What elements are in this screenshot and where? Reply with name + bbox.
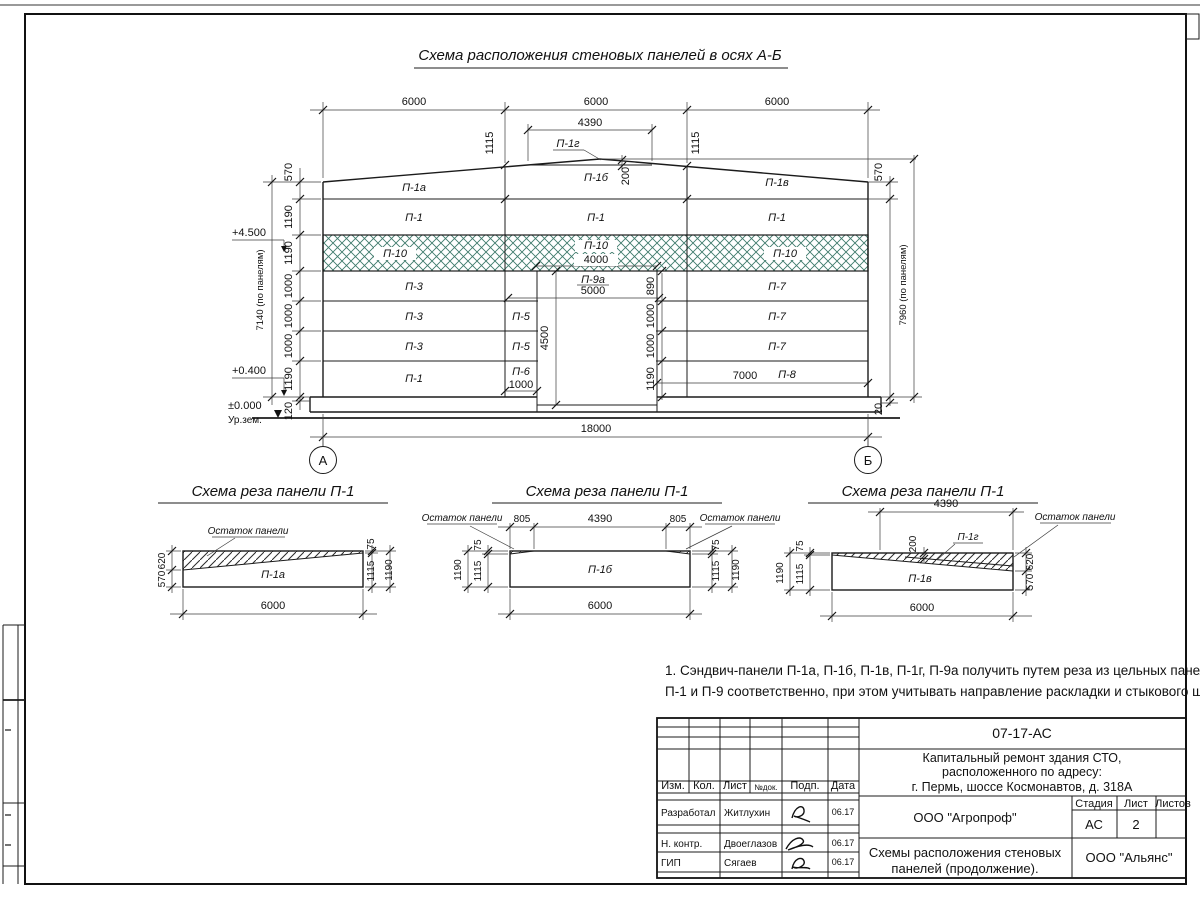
dim-door-890: 890 bbox=[645, 277, 657, 295]
cut1-dim-6000: 6000 bbox=[261, 600, 285, 612]
panel-p8: П-8 bbox=[778, 369, 797, 381]
cut3-dim-r620: 620 bbox=[1025, 553, 1036, 570]
panel-p3b: П-3 bbox=[405, 311, 424, 323]
page-title: Схема расположения стеновых панелей в ос… bbox=[418, 47, 781, 64]
panel-p1-row7: П-1 bbox=[405, 373, 423, 385]
tb-name-1: Житлухин bbox=[724, 808, 770, 819]
axis-label-b: Б bbox=[864, 453, 873, 468]
title-block: Изм. Кол. Лист №док. Подп. Дата Разработ… bbox=[657, 718, 1191, 878]
note: 1. Сэндвич-панели П-1а, П-1б, П-1в, П-1г… bbox=[665, 663, 1200, 699]
cut3-piece-label: П-1г bbox=[957, 532, 978, 543]
dim-left-1190b: 1190 bbox=[283, 241, 295, 265]
cut3-dim-r570: 570 bbox=[1025, 573, 1036, 590]
panel-p7a: П-7 bbox=[768, 281, 787, 293]
cut-scheme-3: Схема реза панели П-1 П-1в П-1г Остаток … bbox=[775, 483, 1116, 622]
tb-sheet-label: Лист bbox=[1124, 798, 1148, 810]
level-arrow-2 bbox=[281, 390, 287, 396]
main-elevation: 6000 6000 6000 4390 1115 1115 200 570 11… bbox=[228, 96, 922, 474]
tb-header-izm: Изм. bbox=[661, 780, 685, 792]
cut3-dim-4390: 4390 bbox=[934, 498, 958, 510]
cut3-panel-label: П-1в bbox=[908, 573, 932, 585]
cut2-dim-805r: 805 bbox=[670, 514, 687, 525]
cut2-dim-l75: 75 bbox=[473, 539, 484, 551]
dim-door-1190: 1190 bbox=[645, 367, 657, 391]
axis-label-a: А bbox=[319, 453, 328, 468]
panel-p5a: П-5 bbox=[512, 311, 531, 323]
cut1-dim-570: 570 bbox=[157, 570, 168, 587]
cut1-dim-1115: 1115 bbox=[366, 560, 377, 581]
cut3-title: Схема реза панели П-1 bbox=[842, 483, 1005, 500]
cut1-remnant-label: Остаток панели bbox=[208, 526, 289, 537]
level-4500: +4.500 bbox=[232, 227, 266, 239]
panel-p1-row2a: П-1 bbox=[405, 212, 423, 224]
dim-left-1190c: 1190 bbox=[283, 367, 295, 391]
cut2-title: Схема реза панели П-1 bbox=[526, 483, 689, 500]
tb-role-3: ГИП bbox=[661, 858, 681, 869]
signature-2 bbox=[786, 838, 813, 850]
frame-corner-box bbox=[1186, 14, 1199, 39]
dim-p8-width: 7000 bbox=[733, 370, 757, 382]
drawing-sheet: Схема расположения стеновых панелей в ос… bbox=[0, 0, 1200, 900]
panel-p10c: П-10 bbox=[773, 248, 798, 260]
panel-p1g: П-1г bbox=[556, 138, 580, 150]
panel-p6: П-6 bbox=[512, 366, 531, 378]
dim-right-20: 20 bbox=[873, 403, 885, 415]
dim-left-570: 570 bbox=[283, 163, 295, 181]
panel-p10b: П-10 bbox=[584, 240, 609, 252]
dim-apex-width: 4390 bbox=[578, 117, 602, 129]
tb-sheets-label: Листов bbox=[1155, 798, 1191, 810]
dim-span-3: 6000 bbox=[765, 96, 789, 108]
dim-span-1: 6000 bbox=[402, 96, 426, 108]
dim-right-570: 570 bbox=[873, 163, 885, 181]
dim-total-width: 18000 bbox=[581, 423, 612, 435]
panel-p1-row2b: П-1 bbox=[587, 212, 605, 224]
dim-span-2: 6000 bbox=[584, 96, 608, 108]
dim-right-total: 7960 (по панелям) bbox=[898, 244, 909, 325]
panel-p1b: П-1б bbox=[584, 172, 609, 184]
signature-3 bbox=[792, 858, 810, 869]
cut2-dim-4390: 4390 bbox=[588, 513, 612, 525]
level-0400: +0.400 bbox=[232, 365, 266, 377]
cut3-dim-200: 200 bbox=[908, 535, 919, 552]
dim-slope-left: 1115 bbox=[484, 132, 496, 155]
dim-p9a-width: 5000 bbox=[581, 285, 605, 297]
tb-header-data: Дата bbox=[831, 780, 856, 792]
tb-doc-code: 07-17-АС bbox=[992, 725, 1052, 741]
tb-header-ndok: №док. bbox=[754, 783, 777, 792]
dim-left-1000c: 1000 bbox=[283, 334, 295, 358]
dim-door-height: 4500 bbox=[539, 326, 551, 350]
cut1-dim-75: 75 bbox=[366, 538, 377, 550]
tb-date-2: 06.17 bbox=[832, 838, 855, 848]
panel-p1v: П-1в bbox=[765, 177, 789, 189]
level-arrow-3 bbox=[274, 410, 282, 418]
cut1-title: Схема реза панели П-1 bbox=[192, 483, 355, 500]
dim-door-1000a: 1000 bbox=[645, 304, 657, 328]
cut1-dim-1190: 1190 bbox=[384, 559, 395, 581]
tb-doc-title-2: панелей (продолжение). bbox=[891, 861, 1038, 876]
panel-p1-row2c: П-1 bbox=[768, 212, 786, 224]
cut-scheme-1: Схема реза панели П-1 П-1а Остаток панел… bbox=[157, 483, 396, 620]
tb-date-1: 06.17 bbox=[832, 807, 855, 817]
panel-p7b: П-7 bbox=[768, 311, 787, 323]
note-line-2: П-1 и П-9 соответственно, при этом учиты… bbox=[665, 684, 1200, 699]
tb-project-2: расположенного по адресу: bbox=[942, 765, 1102, 779]
cut1-dim-620: 620 bbox=[157, 552, 168, 569]
tb-date-3: 06.17 bbox=[832, 857, 855, 867]
tb-stage-value: АС bbox=[1085, 817, 1103, 832]
cut2-dim-l1190: 1190 bbox=[453, 559, 464, 581]
tb-project-3: г. Пермь, шоссе Космонавтов, д. 318А bbox=[912, 780, 1133, 794]
cut2-dim-r1115: 1115 bbox=[711, 560, 722, 581]
dim-door-1000b: 1000 bbox=[645, 334, 657, 358]
cut3-dim-l1115: 1115 bbox=[795, 563, 806, 584]
note-line-1: 1. Сэндвич-панели П-1а, П-1б, П-1в, П-1г… bbox=[665, 663, 1200, 678]
panel-p9a: П-9а bbox=[581, 274, 605, 286]
cut3-remnant-label: Остаток панели bbox=[1035, 512, 1116, 523]
dim-apex-200: 200 bbox=[620, 167, 632, 185]
main-title: Схема расположения стеновых панелей в ос… bbox=[414, 47, 788, 68]
cut2-remnant-right: Остаток панели bbox=[700, 513, 781, 524]
ground-label: Ур.зем. bbox=[228, 415, 262, 426]
dim-left-total: 7140 (по панелям) bbox=[255, 249, 266, 330]
tb-stage-label: Стадия bbox=[1075, 798, 1113, 810]
panel-p3c: П-3 bbox=[405, 341, 424, 353]
cut3-dim-6000: 6000 bbox=[910, 602, 934, 614]
panel-p10a: П-10 bbox=[383, 248, 408, 260]
tb-header-kol: Кол. bbox=[693, 780, 715, 792]
panel-p3a: П-3 bbox=[405, 281, 424, 293]
cut2-dim-r1190: 1190 bbox=[731, 559, 742, 581]
tb-company: ООО "Альянс" bbox=[1086, 850, 1173, 865]
level-0000: ±0.000 bbox=[228, 400, 262, 412]
dim-p6-width: 1000 bbox=[509, 379, 533, 391]
tb-name-3: Сягаев bbox=[724, 858, 757, 869]
tb-project-1: Капитальный ремонт здания СТО, bbox=[923, 751, 1122, 765]
dim-left-1190a: 1190 bbox=[283, 205, 295, 229]
cut2-dim-805l: 805 bbox=[514, 514, 531, 525]
cut2-dim-r75: 75 bbox=[711, 539, 722, 551]
cut1-panel-label: П-1а bbox=[261, 569, 285, 581]
signature-1 bbox=[792, 807, 810, 822]
cut-scheme-2: Схема реза панели П-1 П-1б Остаток панел… bbox=[422, 483, 781, 620]
tb-header-list: Лист bbox=[723, 780, 747, 792]
cut2-dim-l1115: 1115 bbox=[473, 560, 484, 581]
drawing-canvas: Схема расположения стеновых панелей в ос… bbox=[0, 0, 1200, 900]
panel-p1a: П-1а bbox=[402, 182, 426, 194]
dim-slope-right: 1115 bbox=[690, 132, 702, 155]
cut2-remnant-left: Остаток панели bbox=[422, 513, 503, 524]
cut3-dim-l1190: 1190 bbox=[775, 562, 786, 584]
dim-left-1000a: 1000 bbox=[283, 274, 295, 298]
cut2-dim-6000: 6000 bbox=[588, 600, 612, 612]
tb-name-2: Двоеглазов bbox=[724, 839, 777, 850]
tb-org: ООО "Агропроф" bbox=[913, 810, 1017, 825]
tb-role-2: Н. контр. bbox=[661, 839, 702, 850]
dim-p10-width: 4000 bbox=[584, 254, 608, 266]
tb-doc-title-1: Схемы расположения стеновых bbox=[869, 845, 1062, 860]
cut3-dim-l75: 75 bbox=[795, 540, 806, 552]
panel-p7c: П-7 bbox=[768, 341, 787, 353]
cut2-panel-label: П-1б bbox=[588, 564, 613, 576]
dim-left-120: 120 bbox=[283, 402, 295, 420]
panel-p5b: П-5 bbox=[512, 341, 531, 353]
axis-marks: А Б bbox=[310, 437, 882, 474]
tb-header-podp: Подп. bbox=[790, 780, 819, 792]
tb-role-1: Разработал bbox=[661, 807, 716, 819]
dim-left-1000b: 1000 bbox=[283, 304, 295, 328]
tb-sheet-value: 2 bbox=[1132, 817, 1139, 832]
